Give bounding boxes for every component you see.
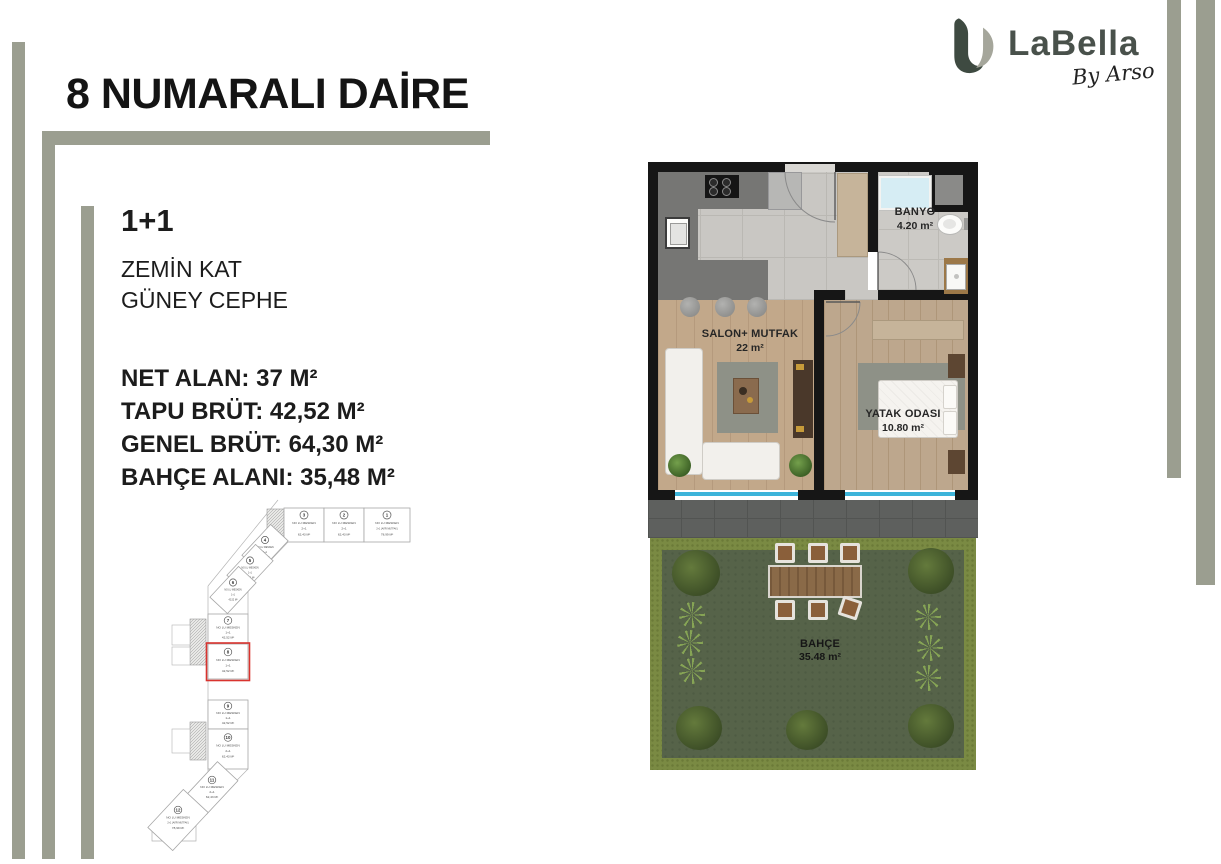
apartment-type: 1+1 [121, 203, 174, 239]
frame-bar-right-outer [1196, 0, 1215, 585]
svg-text:62,43 M²: 62,43 M² [298, 533, 310, 537]
room-label-yatak: YATAK ODASI [865, 408, 940, 420]
room-area-salon: 22 m² [736, 342, 763, 354]
svg-text:78,99 M²: 78,99 M² [381, 533, 393, 537]
bush-top-left [672, 550, 720, 596]
svg-text:2+1: 2+1 [301, 527, 307, 531]
svg-text:NO LU MESKEN: NO LU MESKEN [166, 816, 189, 820]
title-underline [42, 131, 490, 145]
garden-chair-4 [775, 600, 795, 620]
svg-text:62,43 M²: 62,43 M² [222, 755, 234, 759]
garden-chair-2 [808, 543, 828, 563]
svg-text:NO LU MESKEN: NO LU MESKEN [216, 626, 239, 630]
keyplan-unit-8-highlighted: 8 NO LU MESKEN 1+1 42,52 M² [207, 643, 250, 681]
garden-chair-5 [808, 600, 828, 620]
keyplan-stairs-mid [190, 619, 206, 665]
svg-text:62,43 M²: 62,43 M² [338, 533, 350, 537]
keyplan-stairs-low [190, 722, 206, 760]
keyplan-unit-7: 7 NO LU MESKEN 1+1 42,52 M² [208, 614, 248, 644]
apartment-facade: GÜNEY CEPHE [121, 287, 288, 314]
svg-text:42,52 M²: 42,52 M² [222, 669, 234, 673]
fern-right-3 [915, 665, 941, 691]
stat-net-alan: NET ALAN: 37 M² [121, 362, 395, 395]
keyplan-unit-9: 9 NO LU MESKEN 1+1 42,52 M² [208, 700, 248, 729]
svg-text:NO LU MESKEN: NO LU MESKEN [224, 590, 242, 592]
apartment-stats: NET ALAN: 37 M² TAPU BRÜT: 42,52 M² GENE… [121, 362, 395, 494]
keyplan-annex-low [172, 729, 190, 753]
keyplan: 3 NO LU MESKEN 2+1 62,43 M² 2 NO LU MESK… [138, 492, 430, 864]
page-title: 8 NUMARALI DAİRE [66, 70, 469, 119]
keyplan-unit-3: 3 NO LU MESKEN 2+1 62,43 M² [284, 508, 324, 542]
bush-bottom-right [908, 704, 954, 748]
fern-left-2 [677, 630, 703, 656]
keyplan-annex-mid [172, 625, 190, 645]
svg-text:62,43 M²: 62,43 M² [206, 795, 218, 799]
svg-text:42,52 M²: 42,52 M² [222, 721, 234, 725]
keyplan-annex-mid2 [172, 647, 190, 665]
frame-bar-left-1 [12, 42, 25, 859]
room-area-banyo: 4.20 m² [897, 220, 933, 232]
svg-text:12: 12 [176, 808, 181, 813]
svg-text:1+1: 1+1 [225, 716, 231, 720]
bush-bottom-mid [786, 710, 828, 750]
apartment-floor: ZEMİN KAT [121, 256, 242, 283]
paving-strip [648, 500, 978, 538]
room-area-yatak: 10.80 m² [882, 422, 924, 434]
fern-left-1 [679, 602, 705, 628]
keyplan-unit-2: 2 NO LU MESKEN 2+1 62,43 M² [324, 508, 364, 542]
svg-text:NO LU MESKEN: NO LU MESKEN [332, 521, 355, 525]
bush-bottom-left [676, 706, 722, 750]
svg-text:1+1: 1+1 [225, 664, 231, 668]
svg-text:NO LU MESKEN: NO LU MESKEN [216, 658, 239, 662]
garden-table [768, 565, 862, 598]
keyplan-unit-10: 10 NO LU MESKEN 2+1 62,43 M² [208, 729, 248, 769]
garden: BAHÇE 35.48 m² [650, 538, 976, 770]
fern-left-3 [679, 658, 705, 684]
room-label-banyo: BANYO [895, 206, 936, 218]
svg-text:11: 11 [210, 778, 215, 783]
svg-text:NO LU MESKEN: NO LU MESKEN [292, 521, 315, 525]
room-label-bahce: BAHÇE [800, 638, 840, 650]
svg-text:2+1: 2+1 [209, 790, 215, 794]
svg-text:2+1: 2+1 [225, 749, 231, 753]
fern-right-2 [917, 635, 943, 661]
svg-text:42,52 M²: 42,52 M² [222, 636, 234, 640]
stat-genel-brut: GENEL BRÜT: 64,30 M² [121, 428, 395, 461]
bush-top-right [908, 548, 954, 594]
keyplan-unit-1: 1 NO LU MESKEN 2+1 (AYRI MUTFAK) 78,99 M… [364, 508, 410, 542]
svg-text:2+1 (AYRI MUTFAK): 2+1 (AYRI MUTFAK) [376, 528, 397, 531]
svg-text:NO LU MESKEN: NO LU MESKEN [216, 744, 239, 748]
stat-tapu-brut: TAPU BRÜT: 42,52 M² [121, 395, 395, 428]
fern-right-1 [915, 604, 941, 630]
frame-bar-left-2 [42, 131, 55, 859]
brand-logo: LaBella By Arso [952, 16, 1182, 94]
frame-bar-left-3 [81, 206, 94, 859]
svg-text:2+1 (AYRI MUTFAK): 2+1 (AYRI MUTFAK) [167, 822, 188, 825]
garden-chair-3 [840, 543, 860, 563]
svg-text:NO LU MESKEN: NO LU MESKEN [200, 785, 223, 789]
brochure-page: { "page": { "title": "8 NUMARALI DAİRE" … [0, 0, 1221, 864]
brand-name: LaBella [1008, 24, 1140, 64]
svg-text:2+1: 2+1 [341, 527, 347, 531]
svg-text:1+1: 1+1 [225, 631, 231, 635]
svg-text:NO LU MESKEN: NO LU MESKEN [241, 568, 259, 570]
svg-text:NO LU MESKEN: NO LU MESKEN [216, 711, 239, 715]
garden-chair-1 [775, 543, 795, 563]
stat-bahce-alani: BAHÇE ALANI: 35,48 M² [121, 461, 395, 494]
svg-text:42,52 M²: 42,52 M² [228, 599, 237, 602]
svg-text:NO LU MESKEN: NO LU MESKEN [375, 521, 398, 525]
room-area-bahce: 35.48 m² [799, 651, 841, 663]
svg-text:10: 10 [226, 735, 231, 740]
floorplan-image: SALON+ MUTFAK 22 m² BANYO 4.20 m² YATAK … [648, 162, 978, 774]
room-label-salon: SALON+ MUTFAK [702, 328, 798, 340]
svg-text:78,99 M²: 78,99 M² [172, 826, 184, 830]
leaf-logo-icon [952, 18, 998, 74]
